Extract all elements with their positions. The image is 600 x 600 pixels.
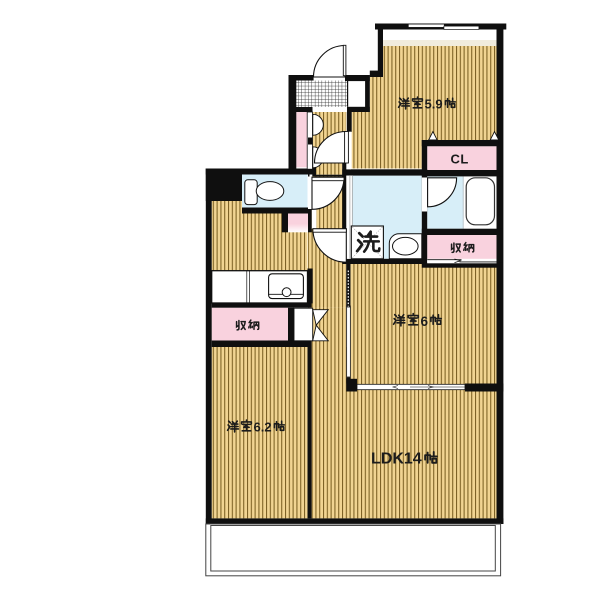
svg-text:5.9: 5.9: [425, 97, 443, 112]
svg-text:6: 6: [421, 314, 429, 329]
svg-text:6.2: 6.2: [254, 420, 272, 435]
svg-text:CL: CL: [451, 152, 469, 167]
svg-text:LDK14: LDK14: [371, 451, 422, 468]
